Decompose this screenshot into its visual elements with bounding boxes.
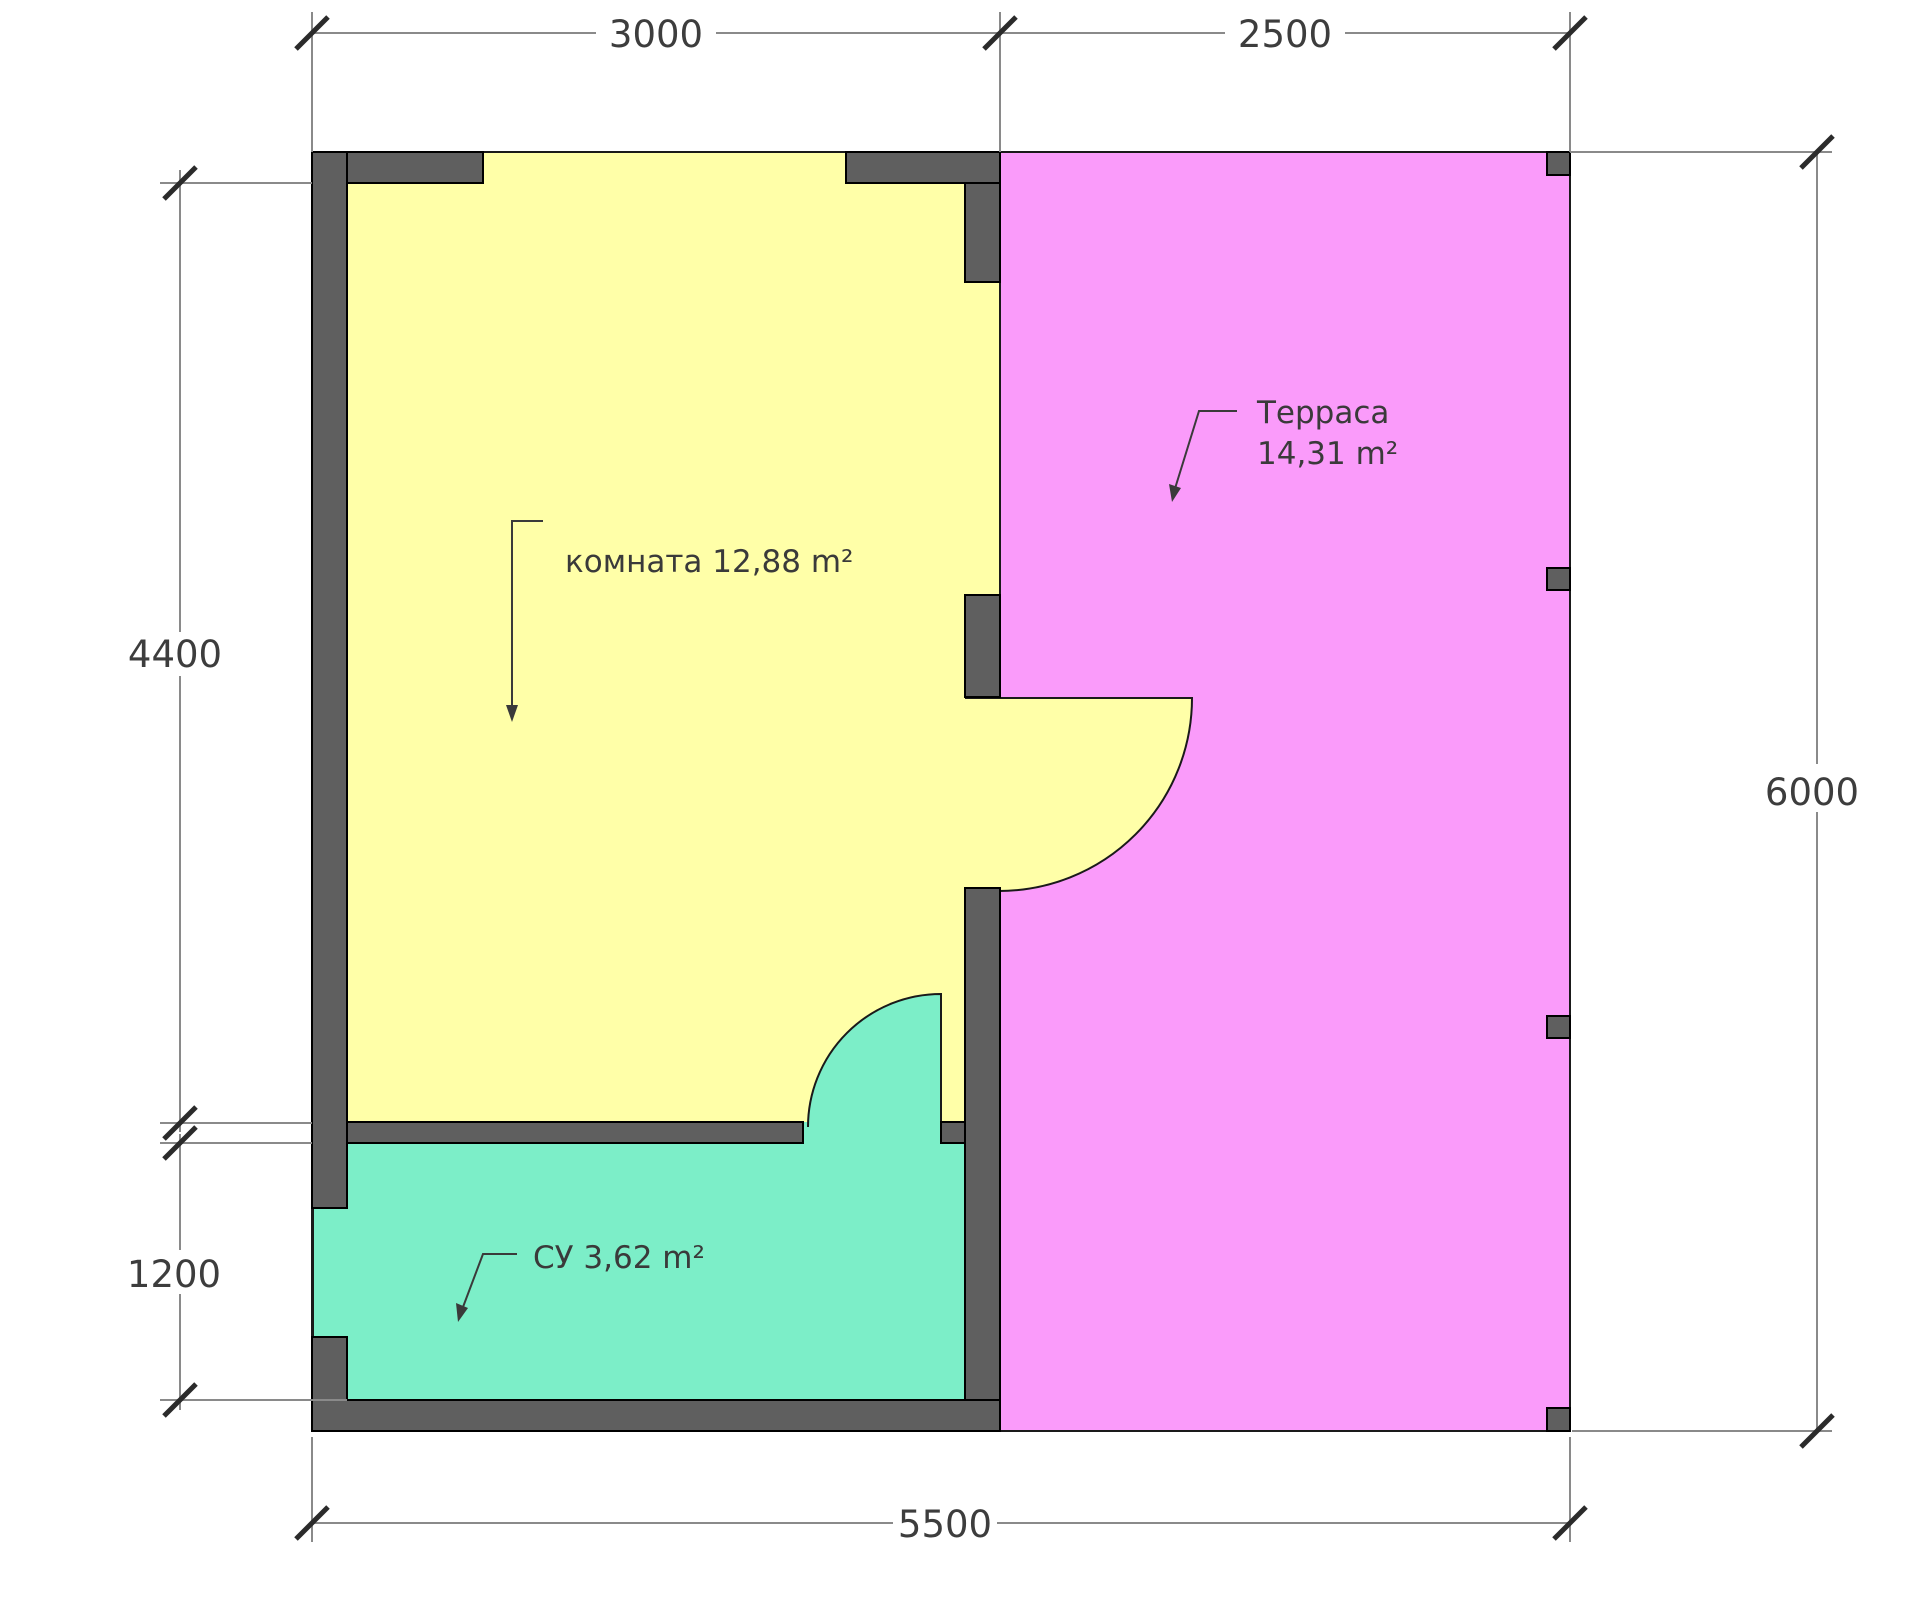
terrace-label-line2: 14,31 m² <box>1257 436 1398 472</box>
terrace-post-top <box>1547 152 1570 175</box>
room-right-window <box>965 282 1000 595</box>
wall-divider-upper <box>965 183 1000 282</box>
terrace-post-bottom <box>1547 1408 1570 1431</box>
dim-left-upper: 4400 <box>128 633 222 676</box>
dim-bottom: 5500 <box>898 1503 992 1546</box>
wall-left-upper <box>312 152 347 1208</box>
terrace-post-upper-middle <box>1547 568 1570 590</box>
wall-top-right <box>846 152 1000 183</box>
dim-top-right: 2500 <box>1238 13 1332 56</box>
wall-bathroom-divider <box>347 1122 803 1143</box>
dim-top-left: 3000 <box>609 13 703 56</box>
wall-bottom <box>312 1400 1000 1431</box>
terrace-post-lower-middle <box>1547 1016 1570 1038</box>
wall-bathroom-divider-stub <box>941 1122 965 1143</box>
floor-plan-drawing: 3000 2500 4400 1200 6000 5500 комната 12… <box>0 0 1922 1600</box>
bathroom-label: СУ 3,62 m² <box>533 1240 705 1276</box>
bathroom-left-window <box>312 1208 348 1337</box>
room-label: комната 12,88 m² <box>565 544 853 580</box>
floor-plan-page: 3000 2500 4400 1200 6000 5500 комната 12… <box>0 0 1922 1600</box>
dim-left-lower: 1200 <box>127 1253 221 1296</box>
room-area <box>347 152 1000 1122</box>
wall-divider-middle <box>965 595 1000 697</box>
dim-right-side: 6000 <box>1765 771 1859 814</box>
room-floor <box>347 183 965 1122</box>
wall-divider-lower <box>965 888 1000 1400</box>
room-top-window <box>483 152 846 183</box>
terrace-label-line1: Терраса <box>1256 395 1389 431</box>
